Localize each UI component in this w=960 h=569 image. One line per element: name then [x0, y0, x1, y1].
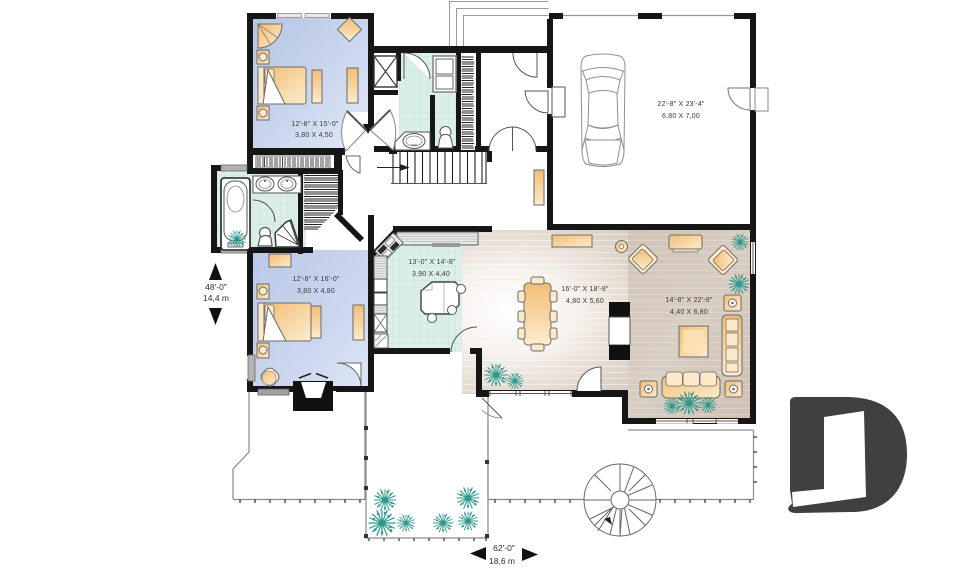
- svg-text:12'-8" X 16'-0": 12'-8" X 16'-0": [292, 276, 340, 283]
- svg-text:4,80 X 5,60: 4,80 X 5,60: [566, 298, 604, 305]
- svg-text:18,6 m: 18,6 m: [489, 556, 515, 566]
- svg-text:3,80 X 4,80: 3,80 X 4,80: [297, 288, 335, 295]
- svg-text:62'-0": 62'-0": [493, 543, 515, 553]
- svg-text:3,80 X 4,50: 3,80 X 4,50: [295, 132, 333, 139]
- svg-text:22'-8" X 23'-4": 22'-8" X 23'-4": [657, 101, 705, 108]
- svg-text:13'-0" X 14'-8": 13'-0" X 14'-8": [408, 259, 456, 266]
- svg-text:4,40 X 6,80: 4,40 X 6,80: [670, 309, 708, 316]
- svg-text:14,4 m: 14,4 m: [203, 293, 229, 303]
- svg-text:16'-0" X 18'-8": 16'-0" X 18'-8": [561, 286, 609, 293]
- svg-text:14'-8" X 22'-8": 14'-8" X 22'-8": [665, 297, 713, 304]
- svg-text:48'-0": 48'-0": [205, 282, 227, 292]
- svg-text:12'-8" X 15'-0": 12'-8" X 15'-0": [291, 121, 339, 128]
- svg-text:3,90 X 4,40: 3,90 X 4,40: [412, 271, 450, 278]
- svg-text:6,80 X 7,00: 6,80 X 7,00: [662, 113, 700, 120]
